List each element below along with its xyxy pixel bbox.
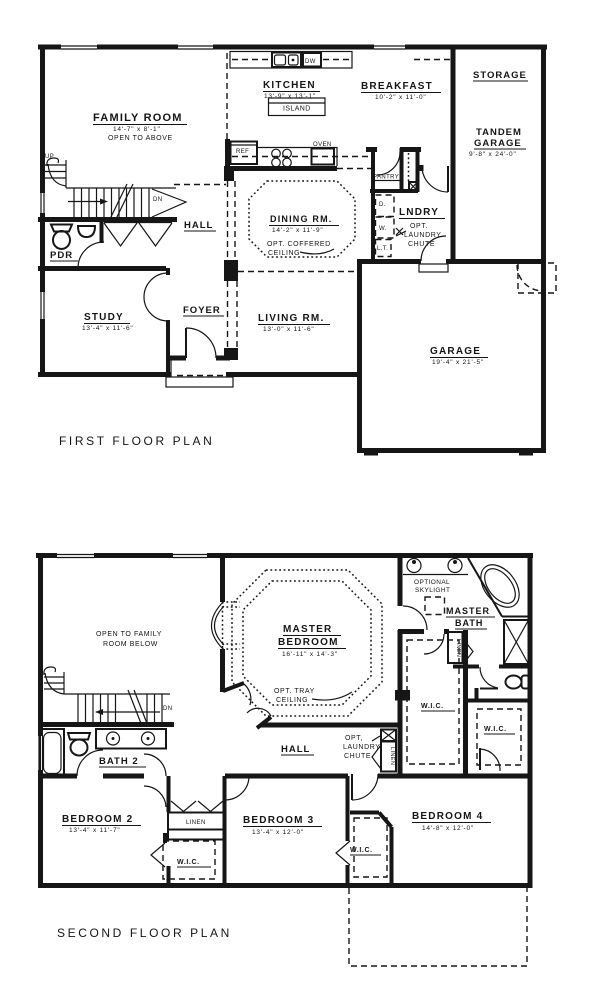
svg-text:CEILING: CEILING (268, 250, 300, 257)
svg-text:W.I.C.: W.I.C. (421, 703, 444, 710)
svg-text:OVEN: OVEN (313, 142, 332, 148)
svg-text:HALL: HALL (184, 220, 213, 231)
svg-text:9'-8" x 24'-0": 9'-8" x 24'-0" (469, 151, 517, 158)
svg-text:CEILING: CEILING (276, 697, 308, 704)
svg-text:STUDY: STUDY (84, 312, 124, 323)
svg-text:LNDRY: LNDRY (399, 207, 439, 218)
svg-text:DINING RM.: DINING RM. (270, 214, 333, 224)
svg-text:CHUTE: CHUTE (344, 753, 371, 760)
svg-text:14'-7" x 8'-1": 14'-7" x 8'-1" (113, 126, 161, 133)
svg-text:OPT,: OPT, (345, 735, 363, 742)
svg-text:BATH: BATH (455, 618, 483, 628)
svg-text:DN: DN (153, 197, 162, 203)
svg-text:OPTIONAL: OPTIONAL (414, 579, 450, 586)
svg-text:D.: D. (379, 202, 386, 208)
svg-text:ISLAND: ISLAND (283, 106, 311, 113)
svg-text:OPEN TO ABOVE: OPEN TO ABOVE (108, 135, 173, 142)
svg-text:LINEN: LINEN (186, 820, 206, 826)
svg-text:LINEN: LINEN (455, 639, 461, 657)
svg-text:BREAKFAST: BREAKFAST (361, 81, 433, 92)
svg-text:MASTER: MASTER (446, 606, 490, 616)
svg-text:GARAGE: GARAGE (474, 138, 522, 149)
svg-text:W.I.C.: W.I.C. (177, 859, 200, 866)
svg-text:W.I.C.: W.I.C. (350, 847, 373, 854)
svg-text:OPT. TRAY: OPT. TRAY (274, 688, 315, 695)
svg-text:OPT. COFFERED: OPT. COFFERED (267, 241, 331, 248)
svg-text:LAUNDRY: LAUNDRY (343, 744, 381, 751)
svg-text:STORAGE: STORAGE (473, 70, 527, 81)
svg-text:W.: W. (379, 226, 387, 232)
svg-text:PDR: PDR (50, 250, 73, 261)
svg-text:FAMILY ROOM: FAMILY ROOM (93, 112, 183, 124)
svg-text:14'-8" x 12'-0": 14'-8" x 12'-0" (422, 825, 474, 832)
svg-text:LINEN: LINEN (389, 747, 395, 765)
svg-text:OPT.: OPT. (410, 223, 428, 230)
svg-text:13'-4" x 11'-6": 13'-4" x 11'-6" (82, 325, 134, 332)
svg-text:DW: DW (305, 59, 316, 65)
svg-text:19'-4" x 21'-5": 19'-4" x 21'-5" (432, 359, 484, 366)
svg-text:DN: DN (163, 706, 172, 712)
svg-text:13'-9" x 13'-1": 13'-9" x 13'-1" (264, 93, 316, 100)
svg-text:KITCHEN: KITCHEN (263, 80, 316, 91)
svg-text:PANTRY: PANTRY (373, 175, 399, 181)
svg-text:OPEN TO FAMILY: OPEN TO FAMILY (96, 631, 162, 638)
svg-text:L.T.: L.T. (377, 246, 388, 252)
svg-text:BEDROOM 2: BEDROOM 2 (62, 814, 133, 825)
svg-text:SKYLIGHT: SKYLIGHT (415, 587, 450, 594)
svg-text:GARAGE: GARAGE (430, 346, 481, 357)
svg-text:BEDROOM: BEDROOM (278, 637, 339, 648)
svg-text:HALL: HALL (281, 744, 310, 755)
svg-text:ROOM BELOW: ROOM BELOW (103, 641, 158, 648)
svg-text:FOYER: FOYER (183, 305, 221, 316)
svg-text:CHUTE: CHUTE (408, 241, 435, 248)
svg-text:13'-4" x 11'-7": 13'-4" x 11'-7" (69, 827, 121, 834)
svg-text:BEDROOM 3: BEDROOM 3 (243, 815, 314, 826)
svg-text:13'-4" x 12'-0": 13'-4" x 12'-0" (252, 829, 304, 836)
svg-text:BATH 2: BATH 2 (99, 756, 139, 767)
svg-text:REF: REF (236, 149, 249, 155)
svg-text:MASTER: MASTER (283, 624, 332, 635)
svg-text:FIRST FLOOR PLAN: FIRST FLOOR PLAN (59, 434, 214, 448)
svg-text:BEDROOM 4: BEDROOM 4 (412, 811, 483, 822)
svg-text:13'-0" x 11'-6": 13'-0" x 11'-6" (263, 326, 315, 333)
svg-text:UP: UP (45, 154, 54, 160)
svg-text:LIVING RM.: LIVING RM. (258, 313, 324, 324)
svg-text:TANDEM: TANDEM (476, 127, 522, 138)
svg-text:14'-2" x 11'-9": 14'-2" x 11'-9" (272, 227, 324, 234)
svg-text:10'-2" x 11'-0": 10'-2" x 11'-0" (375, 94, 427, 101)
svg-text:SECOND FLOOR PLAN: SECOND FLOOR PLAN (57, 926, 232, 940)
svg-text:W.I.C.: W.I.C. (484, 726, 507, 733)
svg-text:16'-11" x 14'-3": 16'-11" x 14'-3" (282, 651, 338, 658)
